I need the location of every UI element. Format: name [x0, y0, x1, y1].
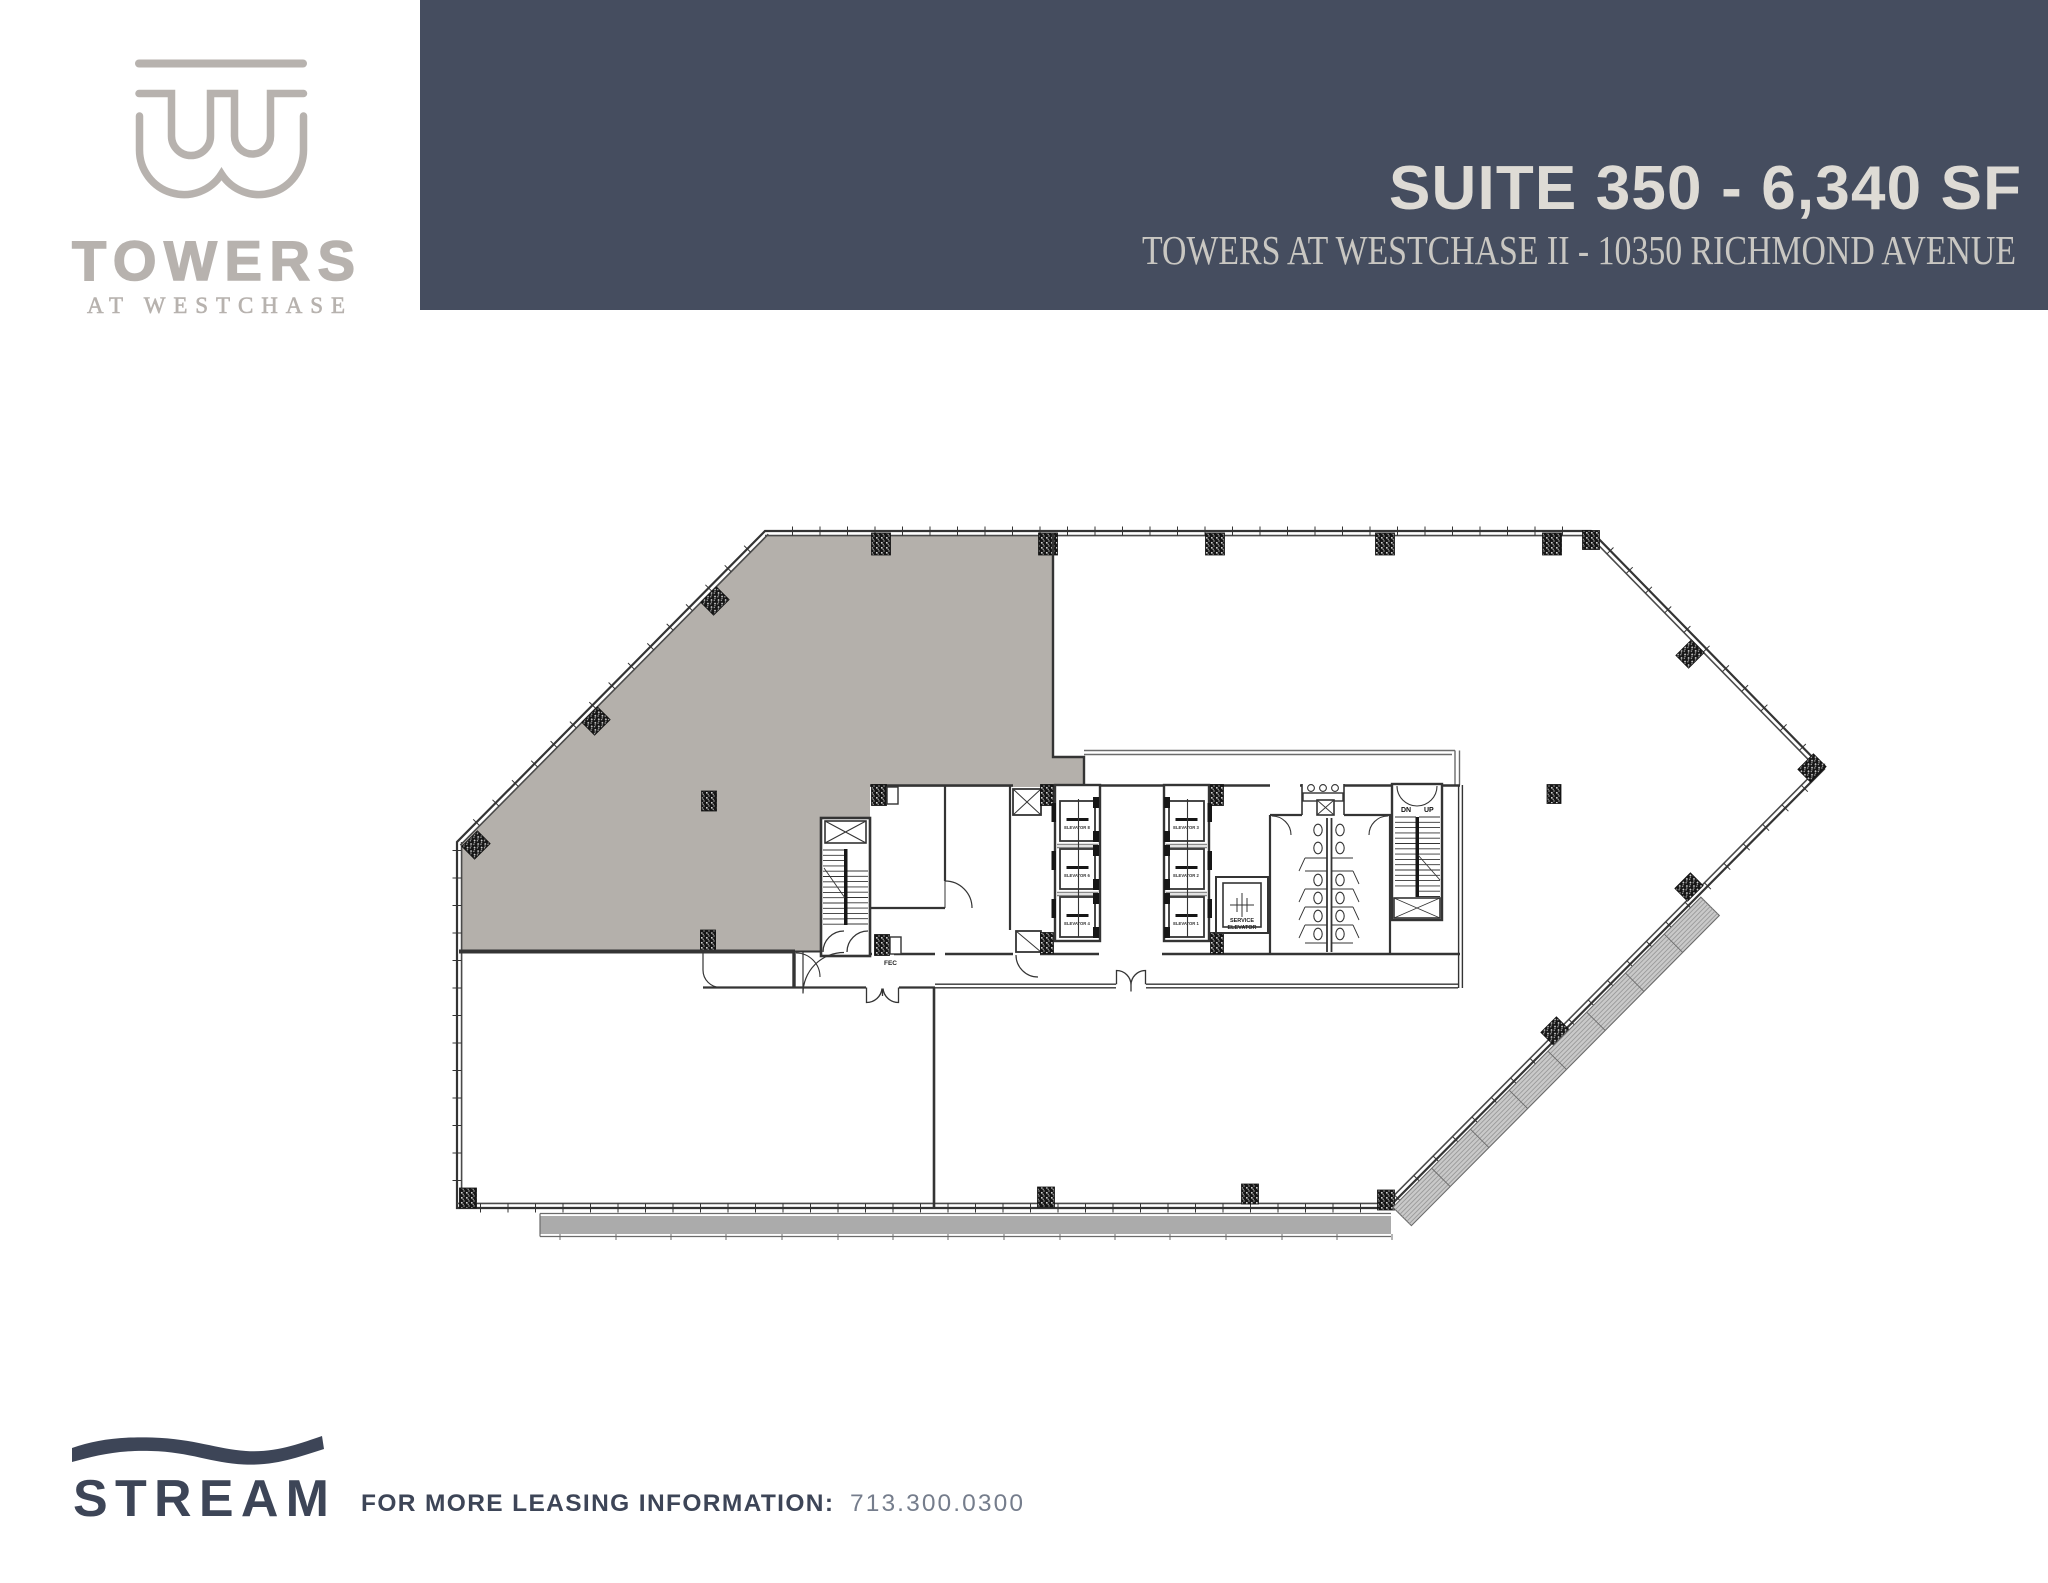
- svg-text:DN: DN: [1401, 807, 1411, 814]
- svg-text:TOWERS AT WESTCHASE II - 10350: TOWERS AT WESTCHASE II - 10350 RICHMOND …: [1142, 227, 2016, 273]
- svg-text:FOR MORE LEASING INFORMATION:: FOR MORE LEASING INFORMATION:: [361, 1490, 833, 1517]
- svg-text:ELEVATOR 1: ELEVATOR 1: [1173, 921, 1199, 926]
- svg-text:ELEVATOR 6: ELEVATOR 6: [1064, 873, 1090, 878]
- svg-text:ELEVATOR 2: ELEVATOR 2: [1173, 873, 1199, 878]
- svg-text:SERVICE: SERVICE: [1230, 918, 1254, 924]
- svg-text:ELEVATOR 4: ELEVATOR 4: [1064, 921, 1090, 926]
- svg-text:ELEVATOR 3: ELEVATOR 3: [1173, 825, 1199, 830]
- svg-text:UP: UP: [1424, 807, 1434, 814]
- svg-text:SUITE 350 - 6,340 SF: SUITE 350 - 6,340 SF: [1389, 154, 2021, 223]
- svg-text:ELEVATOR: ELEVATOR: [1227, 925, 1256, 931]
- svg-text:ELEVATOR 8: ELEVATOR 8: [1064, 825, 1090, 830]
- svg-text:FEC: FEC: [884, 960, 897, 967]
